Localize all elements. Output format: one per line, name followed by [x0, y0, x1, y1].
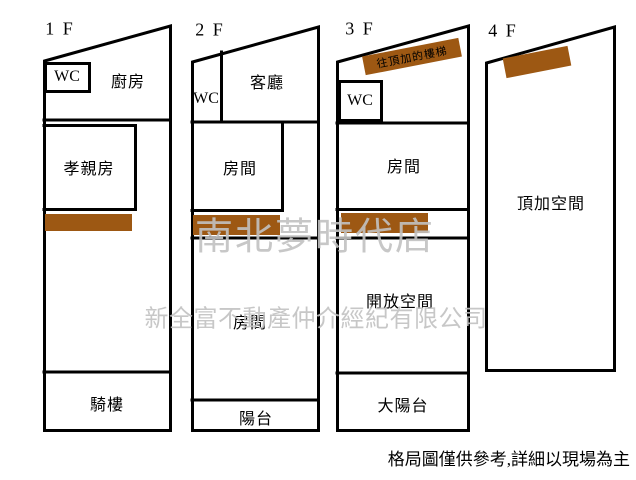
- floor-label-3f: 3 F: [345, 19, 375, 40]
- room-label-living-room: 客廳: [250, 69, 284, 93]
- room-label-room-upper-2f: 房間: [223, 155, 257, 179]
- disclaimer-text: 格局圖僅供參考,詳細以現場為主: [388, 445, 630, 470]
- room-label-wc-1f: WC: [54, 68, 80, 86]
- room-label-wc-3f: WC: [347, 92, 373, 110]
- room-label-balcony-2f: 陽台: [239, 405, 273, 429]
- watermark-company-name: 新全富不動產仲介經紀有限公司: [145, 299, 488, 334]
- floor-label-2f: 2 F: [195, 20, 225, 41]
- stair-block-4f: [503, 46, 572, 78]
- room-label-rooftop-space: 頂加空間: [517, 190, 585, 214]
- room-label-arcade: 騎樓: [90, 391, 124, 415]
- room-label-big-balcony: 大陽台: [377, 392, 428, 416]
- room-label-kitchen: 廚房: [111, 68, 145, 92]
- stair-block-1f: [45, 214, 132, 231]
- floor-label-1f: 1 F: [45, 19, 75, 40]
- room-label-wc-2f: WC: [193, 90, 219, 108]
- floor-label-4f: 4 F: [488, 21, 518, 42]
- room-label-parents-room: 孝親房: [63, 155, 114, 179]
- floor-plan-canvas: 1 F 2 F 3 F 4 F WC 廚房 孝親房 騎樓 WC 客廳 房間 房間…: [0, 0, 636, 480]
- room-label-room-3f: 房間: [387, 153, 421, 177]
- watermark-store-name: 南北夢時代店: [195, 206, 435, 261]
